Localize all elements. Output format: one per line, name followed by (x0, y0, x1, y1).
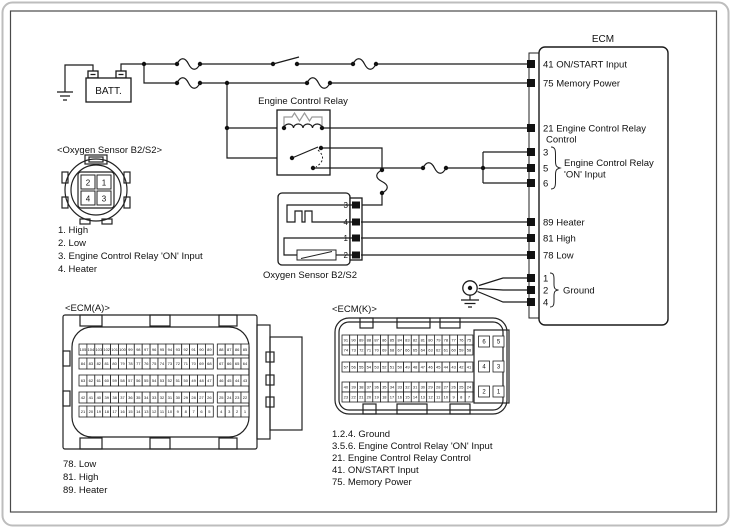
ecm-pin-21-label-line2: Control (546, 135, 577, 146)
pin-cell-number: 10 (168, 409, 173, 414)
pin-cell-number: 14 (136, 409, 141, 414)
o2-connector-pin-number: 1 (102, 179, 107, 188)
pin-cell-number: 29 (183, 395, 188, 400)
pin-cell-number: 90 (351, 338, 356, 343)
pin-cell-number: 64 (243, 361, 248, 366)
ecm-pin-2-label: 2 (543, 285, 548, 296)
pin-cell-number: 54 (367, 365, 372, 370)
pin-cell-number: 19 (374, 395, 379, 400)
wiring-diagram-page: BATT. Engine Control Relay (0, 0, 731, 528)
pin-cell-number: 64 (421, 348, 426, 353)
pin-cell-number: 41 (89, 395, 94, 400)
pin-cell-number: 59 (112, 378, 117, 383)
pin-cell-number: 47 (207, 378, 212, 383)
pin-cell-number: 48 (199, 378, 204, 383)
pin-cell-number: 20 (367, 395, 372, 400)
pin-cell-number: 55 (359, 365, 364, 370)
pin-cell-number: 89 (359, 338, 364, 343)
pin-cell-number: 72 (176, 361, 181, 366)
pin-cell-number: 13 (421, 395, 426, 400)
pin-cell-number: 80 (428, 338, 433, 343)
ecm-pin-1-label: 1 (543, 273, 548, 284)
o2-component-box (278, 193, 350, 265)
pin-cell-number: 33 (397, 385, 402, 390)
ecm-k-label: <ECM(K)> (332, 304, 377, 315)
pin-cell-number: 90 (199, 347, 204, 352)
pin-cell-number: 56 (136, 378, 141, 383)
pin-cell-number: 36 (128, 395, 133, 400)
pin-cell-number: 16 (120, 409, 125, 414)
pin-cell-number: 82 (413, 338, 418, 343)
pin-cell-number: 32 (405, 385, 410, 390)
pin-cell-number: 35 (382, 385, 387, 390)
pin-cell-number: 85 (390, 338, 395, 343)
pin-cell-number: 87 (374, 338, 379, 343)
ecm-pin-75-label: 75 Memory Power (543, 78, 620, 89)
o2-legend-line: 1. High (58, 225, 88, 236)
pin-cell-number: 70 (374, 348, 379, 353)
pin-cell-number: 42 (459, 365, 464, 370)
ecm-pin-6-label: 6 (543, 178, 548, 189)
ecm-a-legend-line: 81. High (63, 472, 98, 483)
pin-cell-number: 31 (168, 395, 173, 400)
ecm-pin-41-label: 41 ON/START Input (543, 59, 627, 70)
pin-cell-number: 66 (227, 361, 232, 366)
pin-cell-number: 18 (382, 395, 387, 400)
pin-cell-number: 38 (112, 395, 117, 400)
ecm-group-356-label-line2: 'ON' Input (564, 170, 606, 181)
pin-cell-number: 15 (405, 395, 410, 400)
pin-cell-number: 75 (467, 338, 472, 343)
pin-cell-number: 78 (128, 361, 133, 366)
pin-cell-number: 86 (382, 338, 387, 343)
o2-legend-line: 4. Heater (58, 264, 97, 275)
pin-cell-number: 10 (444, 395, 449, 400)
pin-cell-number: 35 (136, 395, 141, 400)
relay-label: Engine Control Relay (258, 96, 348, 107)
ecm-k-pin-grid: 9190898887868584838281807978777675747372… (342, 335, 473, 402)
pin-cell-number: 67 (219, 361, 224, 366)
pin-cell-number: 46 (219, 378, 224, 383)
pin-cell-number: 43 (451, 365, 456, 370)
pin-cell-number: 76 (144, 361, 149, 366)
pin-cell-number: 19 (97, 409, 102, 414)
pin-cell-number: 65 (235, 361, 240, 366)
pin-cell-number: 26 (207, 395, 212, 400)
pin-cell-number: 89 (207, 347, 212, 352)
pin-cell-number: 42 (81, 395, 86, 400)
pin-cell-number: 26 (451, 385, 456, 390)
pin-cell-number: 29 (428, 385, 433, 390)
pin-cell-number: 74 (160, 361, 165, 366)
ecm-a-label: <ECM(A)> (65, 303, 110, 314)
pin-cell-number: 47 (421, 365, 426, 370)
pin-cell-number: 62 (89, 378, 94, 383)
pin-cell-number: 103 (95, 347, 102, 352)
ecm-title: ECM (592, 34, 614, 45)
pin-cell-number: 53 (160, 378, 165, 383)
pin-cell-number: 73 (351, 348, 356, 353)
pin-cell-number: 98 (136, 347, 141, 352)
pin-cell-number: 45 (436, 365, 441, 370)
pin-cell-number: 24 (467, 385, 472, 390)
pin-cell-number: 88 (219, 347, 224, 352)
pin-cell-number: 12 (428, 395, 433, 400)
pin-cell-number: 63 (81, 378, 86, 383)
pin-cell-number: 23 (344, 395, 349, 400)
ecm-k-legend-line: 3.5.6. Engine Control Relay 'ON' Input (332, 441, 493, 452)
pin-cell-number: 24 (227, 395, 232, 400)
pin-cell-number: 93 (176, 347, 181, 352)
pin-cell-number: 44 (444, 365, 449, 370)
pin-cell-number: 92 (183, 347, 188, 352)
pin-cell-number: 102 (103, 347, 110, 352)
pin-cell-number: 88 (367, 338, 372, 343)
pin-cell-number: 51 (176, 378, 181, 383)
pin-cell-number: 49 (405, 365, 410, 370)
pin-cell-number: 65 (413, 348, 418, 353)
pin-cell-number: 25 (219, 395, 224, 400)
pin-cell-number: 51 (390, 365, 395, 370)
pin-cell-number: 105 (80, 347, 87, 352)
pin-cell-number: 22 (243, 395, 248, 400)
o2-connector-pin-number: 4 (86, 195, 91, 204)
pin-cell-number: 59 (459, 348, 464, 353)
pin-cell-number: 75 (152, 361, 157, 366)
pin-cell-number: 34 (390, 385, 395, 390)
ecm-k-legend-line: 41. ON/START Input (332, 465, 419, 476)
pin-cell-number: 66 (405, 348, 410, 353)
ecm-k-legend-line: 1.2.4. Ground (332, 429, 390, 440)
ecm-pin-4-label: 4 (543, 297, 548, 308)
pin-cell-number: 73 (168, 361, 173, 366)
pin-cell-number: 12 (152, 409, 157, 414)
battery-label: BATT. (95, 86, 121, 97)
pin-cell-number: 97 (144, 347, 149, 352)
pin-cell-number: 55 (144, 378, 149, 383)
pin-cell-number: 81 (421, 338, 426, 343)
pin-cell-number: 49 (191, 378, 196, 383)
pin-cell-number: 80 (112, 361, 117, 366)
pin-cell-number: 57 (344, 365, 349, 370)
pin-cell-number: 84 (397, 338, 402, 343)
pin-cell-number: 58 (120, 378, 125, 383)
pin-cell-number: 30 (421, 385, 426, 390)
pin-cell-number: 63 (428, 348, 433, 353)
pin-cell-number: 45 (227, 378, 232, 383)
pin-cell-number: 77 (136, 361, 141, 366)
ecm-a-legend-line: 78. Low (63, 459, 96, 470)
o2-legend-line: 3. Engine Control Relay 'ON' Input (58, 251, 203, 262)
pin-cell-number: 61 (97, 378, 102, 383)
pin-cell-number: 60 (104, 378, 109, 383)
pin-cell-number: 69 (382, 348, 387, 353)
ecm-group-356-label: Engine Control Relay (564, 158, 654, 169)
pin-cell-number: 27 (444, 385, 449, 390)
ecm-pin-89-label: 89 Heater (543, 217, 585, 228)
o2-connector-label: <Oxygen Sensor B2/S2> (57, 145, 163, 156)
pin-cell-number: 50 (183, 378, 188, 383)
pin-cell-number: 36 (374, 385, 379, 390)
pin-cell-number: 52 (382, 365, 387, 370)
pin-cell-number: 31 (413, 385, 418, 390)
pin-cell-number: 14 (413, 395, 418, 400)
pin-cell-number: 99 (128, 347, 133, 352)
pin-cell-number: 79 (120, 361, 125, 366)
pin-cell-number: 79 (436, 338, 441, 343)
pin-cell-number: 37 (367, 385, 372, 390)
pin-cell-number: 91 (344, 338, 349, 343)
ecm-a-pin-grid: 1051041031021011009998979695949392919089… (79, 344, 249, 417)
pin-cell-number: 91 (191, 347, 196, 352)
pin-cell-number: 18 (104, 409, 109, 414)
pin-cell-number: 37 (120, 395, 125, 400)
ecm-k-legend-line: 75. Memory Power (332, 477, 412, 488)
pin-cell-number: 95 (160, 347, 165, 352)
o2-component-label: Oxygen Sensor B2/S2 (263, 270, 357, 281)
pin-cell-number: 71 (183, 361, 188, 366)
ecm-pin-81-label: 81 High (543, 233, 576, 244)
ecm-k-legend-line: 21. Engine Control Relay Control (332, 453, 471, 464)
ecm-a-legend-line: 89. Heater (63, 485, 107, 496)
ecm-pin-5-label: 5 (543, 163, 548, 174)
pin-cell-number: 81 (104, 361, 109, 366)
pin-cell-number: 34 (144, 395, 149, 400)
pin-cell-number: 68 (390, 348, 395, 353)
pin-cell-number: 25 (459, 385, 464, 390)
pin-cell-number: 68 (207, 361, 212, 366)
pin-cell-number: 101 (111, 347, 118, 352)
o2-legend-line: 2. Low (58, 238, 86, 249)
pin-cell-number: 32 (160, 395, 165, 400)
pin-cell-number: 53 (374, 365, 379, 370)
pin-cell-number: 76 (459, 338, 464, 343)
pin-cell-number: 72 (359, 348, 364, 353)
pin-cell-number: 17 (390, 395, 395, 400)
pin-cell-number: 40 (344, 385, 349, 390)
pin-cell-number: 56 (351, 365, 356, 370)
pin-cell-number: 23 (235, 395, 240, 400)
pin-cell-number: 30 (176, 395, 181, 400)
pin-cell-number: 44 (235, 378, 240, 383)
pin-cell-number: 27 (199, 395, 204, 400)
pin-cell-number: 17 (112, 409, 117, 414)
pin-cell-number: 38 (359, 385, 364, 390)
ecm-pin-3-label: 3 (543, 147, 548, 158)
pin-cell-number: 96 (152, 347, 157, 352)
pin-cell-number: 52 (168, 378, 173, 383)
pin-cell-number: 87 (227, 347, 232, 352)
ecm-group-124-label: Ground (563, 286, 595, 297)
pin-cell-number: 94 (168, 347, 173, 352)
pin-cell-number: 69 (199, 361, 204, 366)
pin-cell-number: 70 (191, 361, 196, 366)
pin-cell-number: 67 (397, 348, 402, 353)
pin-cell-number: 21 (359, 395, 364, 400)
pin-cell-number: 43 (243, 378, 248, 383)
pin-cell-number: 60 (451, 348, 456, 353)
pin-cell-number: 28 (191, 395, 196, 400)
pin-cell-number: 61 (444, 348, 449, 353)
pin-cell-number: 16 (397, 395, 402, 400)
pin-cell-number: 40 (97, 395, 102, 400)
pin-cell-number: 41 (467, 365, 472, 370)
wiring-diagram: BATT. Engine Control Relay (0, 0, 731, 528)
pin-cell-number: 104 (88, 347, 95, 352)
pin-cell-number: 83 (405, 338, 410, 343)
ecm-pin-21-label: 21 Engine Control Relay (543, 123, 646, 134)
pin-cell-number: 39 (351, 385, 356, 390)
pin-cell-number: 58 (467, 348, 472, 353)
pin-cell-number: 71 (367, 348, 372, 353)
pin-cell-number: 20 (89, 409, 94, 414)
pin-cell-number: 54 (152, 378, 157, 383)
pin-cell-number: 100 (119, 347, 126, 352)
pin-cell-number: 74 (344, 348, 349, 353)
pin-cell-number: 78 (444, 338, 449, 343)
pin-cell-number: 33 (152, 395, 157, 400)
pin-cell-number: 84 (81, 361, 86, 366)
ecm-pin-78-label: 78 Low (543, 250, 574, 261)
pin-cell-number: 21 (81, 409, 86, 414)
pin-cell-number: 82 (97, 361, 102, 366)
pin-cell-number: 57 (128, 378, 133, 383)
pin-cell-number: 15 (128, 409, 133, 414)
pin-cell-number: 39 (104, 395, 109, 400)
pin-cell-number: 50 (397, 365, 402, 370)
pin-cell-number: 48 (413, 365, 418, 370)
pin-cell-number: 62 (436, 348, 441, 353)
pin-cell-number: 28 (436, 385, 441, 390)
pin-cell-number: 83 (89, 361, 94, 366)
pin-cell-number: 85 (243, 347, 248, 352)
pin-cell-number: 22 (351, 395, 356, 400)
o2-connector-pin-number: 3 (102, 195, 107, 204)
pin-cell-number: 77 (451, 338, 456, 343)
o2-connector-pin-number: 2 (86, 179, 91, 188)
pin-cell-number: 86 (235, 347, 240, 352)
pin-cell-number: 46 (428, 365, 433, 370)
pin-cell-number: 13 (144, 409, 149, 414)
